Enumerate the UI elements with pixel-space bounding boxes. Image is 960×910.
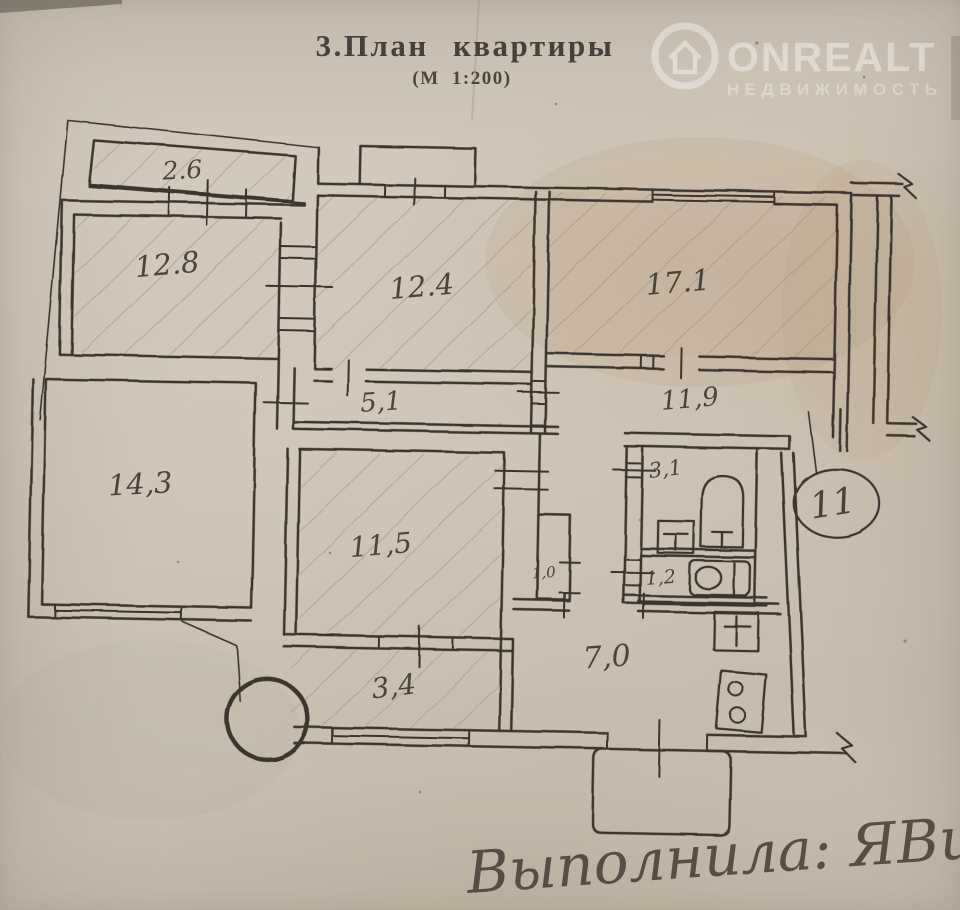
kitchen-sink-icon [714,612,759,651]
room-area-label-5-1: 5,1 [359,386,402,419]
room-area-label-balcony: 2.6 [161,155,203,186]
scanned-floor-plan-photo: 3.План квартиры (М 1:200) ONREALT НЕДВИЖ… [0,0,960,910]
onrealt-watermark: ONREALT НЕДВИЖИМОСТЬ [655,26,943,99]
room-area-label-11-5: 11,5 [348,526,413,564]
title-block: 3.План квартиры (М 1:200) [316,28,615,89]
room-area-label-12-8: 12.8 [133,245,200,284]
paper-edge-shadow-right [951,36,960,120]
page-title: 3.План квартиры [316,28,615,63]
bathtub-icon [701,476,744,548]
room-area-label-7-0: 7,0 [582,638,632,676]
floor-hatch-room-12-8 [71,215,281,359]
room-area-label-1-0: 1,0 [531,563,556,583]
house-icon [670,43,700,72]
watermark-brand: ONREALT [727,34,936,80]
room-area-label-1-2: 1,2 [645,566,677,590]
room-area-label-12-4: 12.4 [388,267,455,306]
room-area-label-3-1: 3,1 [647,455,683,483]
room-area-label-17-1: 17.1 [644,263,711,302]
unit-number-label: 11 [807,480,859,528]
room-area-label-11-9: 11,9 [660,382,720,417]
toilet-icon [689,560,751,595]
watermark-circle-icon [655,26,715,86]
room-area-label-3-4: 3,4 [370,667,418,705]
watermark-subtitle: НЕДВИЖИМОСТЬ [727,80,943,99]
paper-stain [0,640,300,820]
plan-scale-note: (М 1:200) [412,68,511,89]
room-area-label-14-3: 14,3 [107,465,173,502]
stove-icon [716,671,766,733]
handwritten-note: Выполнила: ЯВиц [463,801,960,907]
paper-edge-shadow [0,0,122,13]
